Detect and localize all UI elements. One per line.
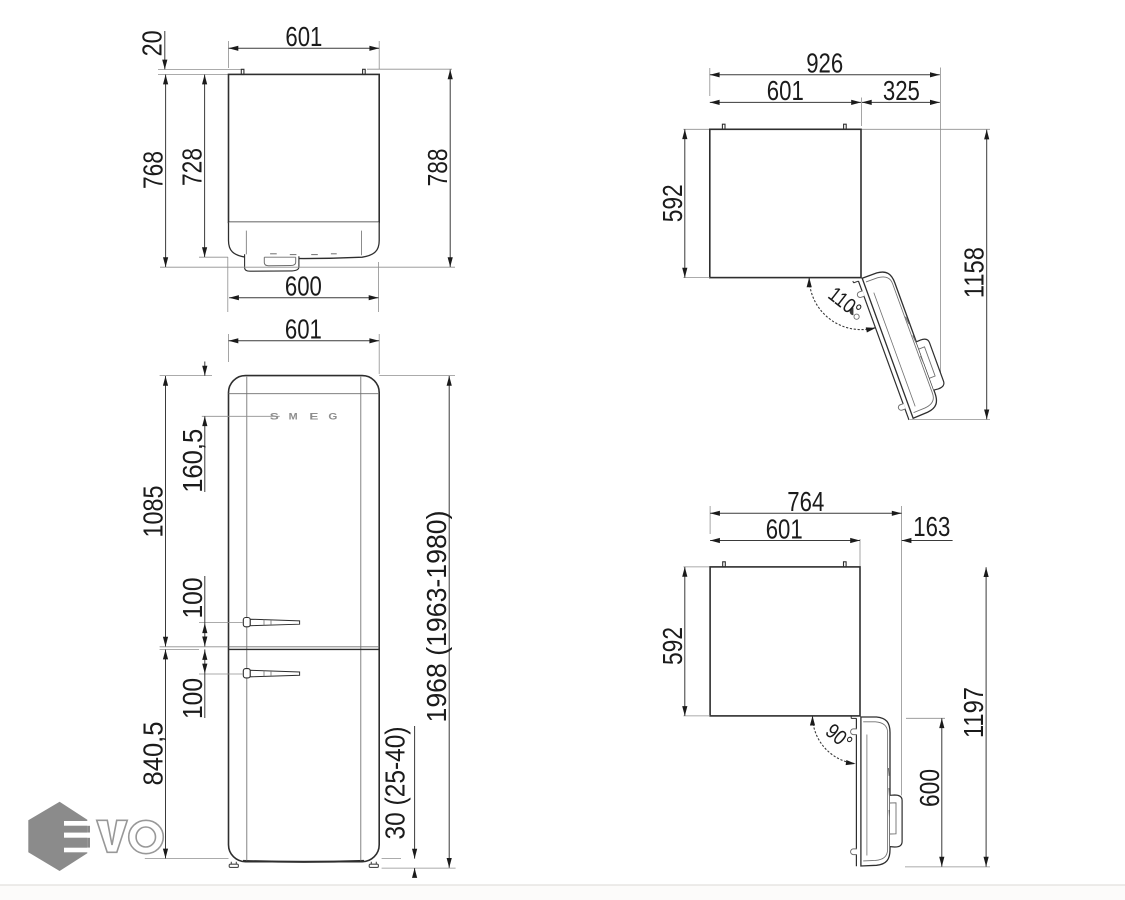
svg-text:100: 100 [177, 578, 208, 619]
svg-text:840,5: 840,5 [138, 722, 169, 786]
svg-text:1158: 1158 [959, 247, 990, 298]
svg-text:1197: 1197 [958, 687, 989, 738]
svg-text:160,5: 160,5 [177, 429, 208, 493]
svg-text:601: 601 [766, 513, 803, 544]
svg-text:600: 600 [285, 271, 322, 302]
svg-text:M: M [289, 411, 298, 421]
svg-text:1085: 1085 [138, 486, 169, 538]
svg-text:100: 100 [177, 678, 208, 719]
svg-text:728: 728 [177, 148, 208, 186]
svg-text:592: 592 [657, 627, 688, 665]
svg-text:601: 601 [285, 21, 322, 52]
svg-text:E: E [309, 411, 318, 421]
svg-text:601: 601 [767, 75, 804, 106]
svg-text:926: 926 [806, 47, 843, 78]
svg-text:20: 20 [137, 30, 168, 56]
svg-text:592: 592 [657, 184, 688, 222]
svg-text:163: 163 [913, 511, 950, 542]
svg-text:1968 (1963-1980): 1968 (1963-1980) [421, 511, 452, 723]
svg-text:601: 601 [285, 314, 322, 345]
svg-text:768: 768 [138, 151, 169, 189]
svg-text:600: 600 [914, 769, 945, 807]
svg-text:325: 325 [883, 75, 920, 106]
svg-text:788: 788 [422, 148, 453, 186]
svg-text:30 (25-40): 30 (25-40) [380, 727, 411, 840]
svg-text:G: G [328, 411, 337, 421]
